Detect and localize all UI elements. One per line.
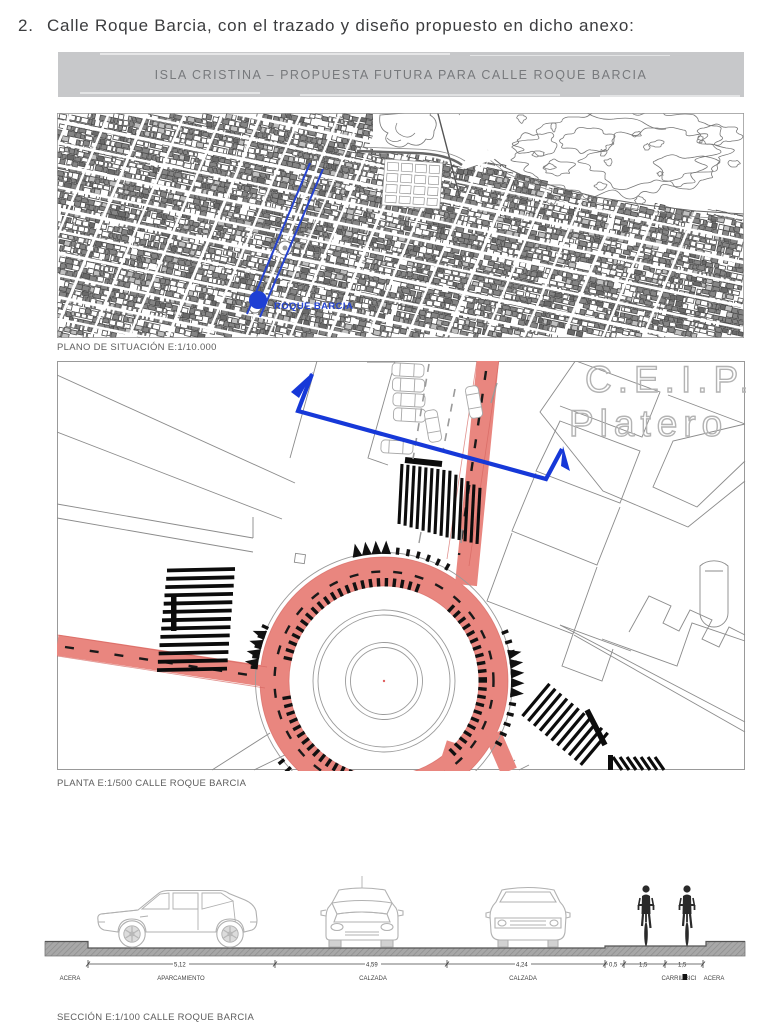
svg-text:ROQUE BARCIA: ROQUE BARCIA <box>274 301 353 312</box>
svg-text:APARCAMIENTO: APARCAMIENTO <box>157 976 205 982</box>
svg-text:4,24: 4,24 <box>516 963 528 969</box>
svg-text:CALZADA: CALZADA <box>359 976 387 982</box>
svg-text:Platero: Platero <box>569 403 728 444</box>
svg-text:CARRIL BICI: CARRIL BICI <box>661 976 696 982</box>
svg-text:CALZADA: CALZADA <box>509 976 537 982</box>
svg-text:ACERA: ACERA <box>704 976 725 982</box>
svg-text:4,59: 4,59 <box>366 963 378 969</box>
svg-text:1,5: 1,5 <box>678 963 687 969</box>
svg-text:ACERA: ACERA <box>60 976 81 982</box>
svg-text:5,12: 5,12 <box>174 963 186 969</box>
svg-text:C.E.I.P.: C.E.I.P. <box>585 361 746 400</box>
svg-text:0,5: 0,5 <box>609 963 618 969</box>
svg-text:1,5: 1,5 <box>639 963 648 969</box>
